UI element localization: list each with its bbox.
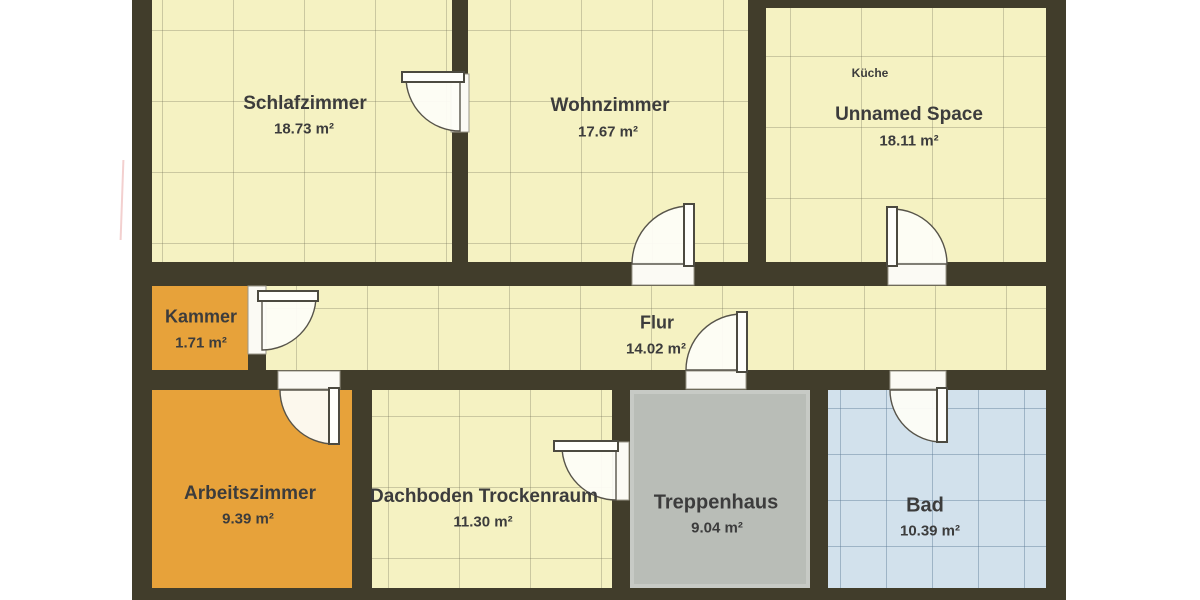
wohnzimmer-area: 17.67 m² [578,124,638,141]
scan-artifact-line [120,160,125,240]
wall-flur-top [152,262,1046,286]
dachboden-area: 11.30 m² [453,514,512,531]
kueche-area: 18.11 m² [879,133,938,150]
flur-area: 14.02 m² [626,341,686,358]
wall-outer-left [132,0,152,600]
room-treppenhaus [630,390,810,588]
wall-wohnzimmer-kueche [748,0,766,262]
arbeitszimmer-area: 9.39 m² [222,511,274,528]
dachboden-label: Dachboden Trockenraum [370,486,598,508]
wall-kueche-top [766,0,1046,8]
floor-plan: Schlafzimmer 18.73 m² Wohnzimmer 17.67 m… [0,0,1200,600]
wall-outer-bottom [132,588,1066,600]
kueche-tag: Küche [852,66,889,80]
wall-outer-right [1046,0,1066,600]
kammer-area: 1.71 m² [175,335,227,352]
wall-treppenhaus-bad [810,390,828,588]
treppenhaus-area: 9.04 m² [691,520,743,537]
wall-dachboden-treppenhaus [612,390,630,588]
wall-flur-bottom [152,370,1046,390]
treppenhaus-label: Treppenhaus [654,492,778,515]
flur-label: Flur [640,313,674,334]
bad-label: Bad [906,495,944,518]
kammer-label: Kammer [165,307,237,328]
wall-kammer-doorpost [248,352,266,370]
wall-schlafzimmer-wohnzimmer [452,0,468,262]
bad-area: 10.39 m² [900,523,960,540]
arbeitszimmer-label: Arbeitszimmer [184,483,316,505]
schlafzimmer-label: Schlafzimmer [243,93,367,115]
room-bad [828,390,1046,588]
schlafzimmer-area: 18.73 m² [274,121,334,138]
wohnzimmer-label: Wohnzimmer [551,95,670,117]
kueche-label: Unnamed Space [835,104,983,126]
room-kammer [152,286,248,370]
